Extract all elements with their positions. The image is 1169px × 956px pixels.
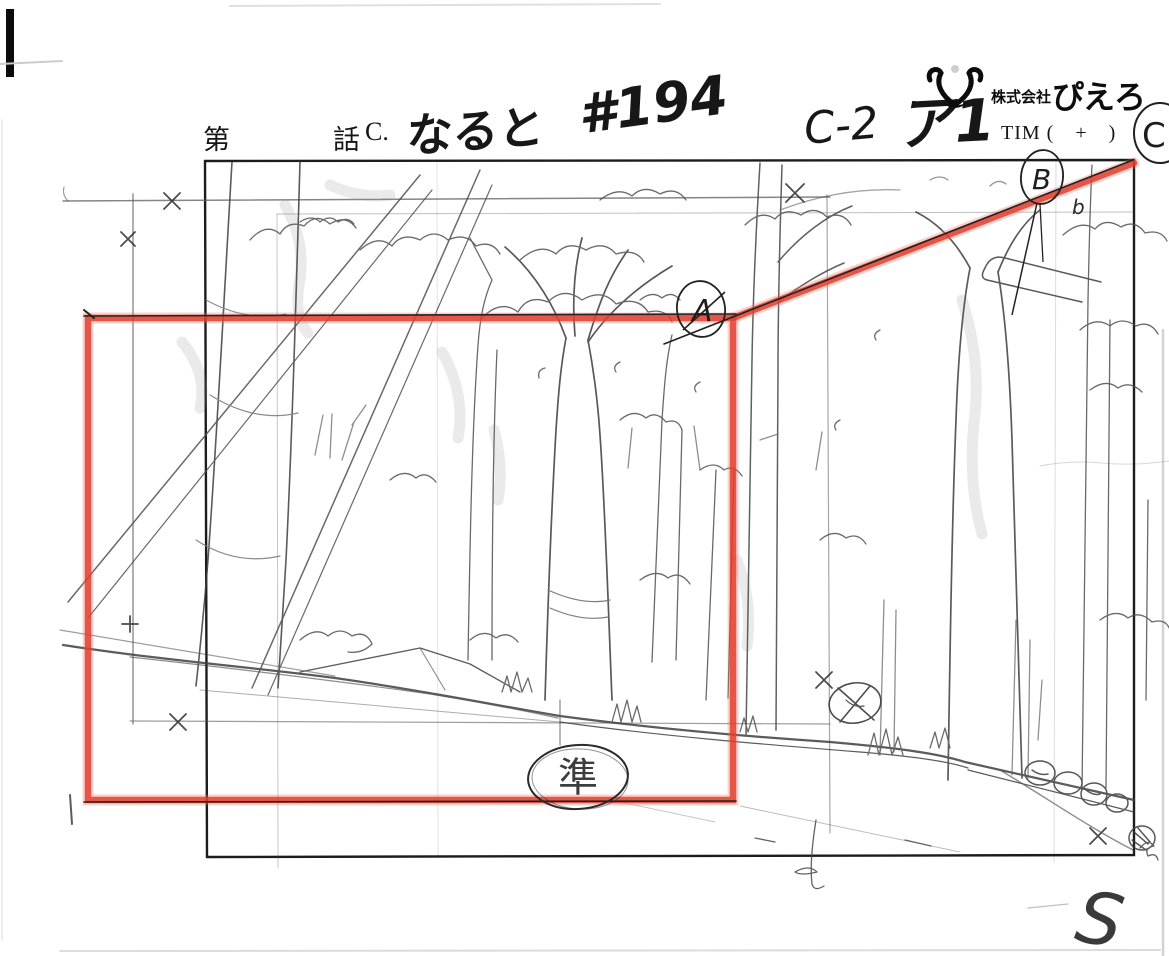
pencil-shading — [182, 185, 982, 646]
layout-sketch: A B b 準 S C — [0, 0, 1169, 956]
far-right-trunks — [1082, 165, 1148, 790]
grass-tufts — [502, 672, 950, 755]
scan-artifacts — [0, 4, 1169, 956]
pencil-field-guides — [63, 187, 1133, 868]
corner-c-mark: C — [1134, 103, 1169, 163]
c-letter: C — [1142, 116, 1166, 156]
main-center-tree — [505, 238, 672, 700]
small-b-note: b — [1072, 195, 1085, 219]
left-wide-trunk — [196, 162, 300, 688]
circled-a-label: A — [673, 278, 728, 340]
canopy-foliage — [250, 177, 1169, 652]
layout-sheet-page: 第 話 C. なると #194 C-2 ア1 株式会社 ぴえろ TIM ( + … — [0, 0, 1169, 956]
cross-marks — [121, 184, 1106, 844]
leaning-trunks — [68, 170, 492, 695]
fallen-log — [982, 257, 1101, 302]
ground-slope — [60, 630, 1134, 852]
rock-cluster — [1025, 761, 1155, 850]
outer-border — [205, 160, 1134, 857]
corner-flourish: S — [1070, 874, 1130, 956]
stamp-kanji: 準 — [558, 755, 598, 801]
b-letter: B — [1032, 163, 1051, 196]
a-letter: A — [690, 294, 713, 329]
right-tall-trunk — [746, 163, 852, 735]
center-right-saplings — [652, 335, 734, 700]
pan-guide-diagonal — [733, 163, 1134, 318]
